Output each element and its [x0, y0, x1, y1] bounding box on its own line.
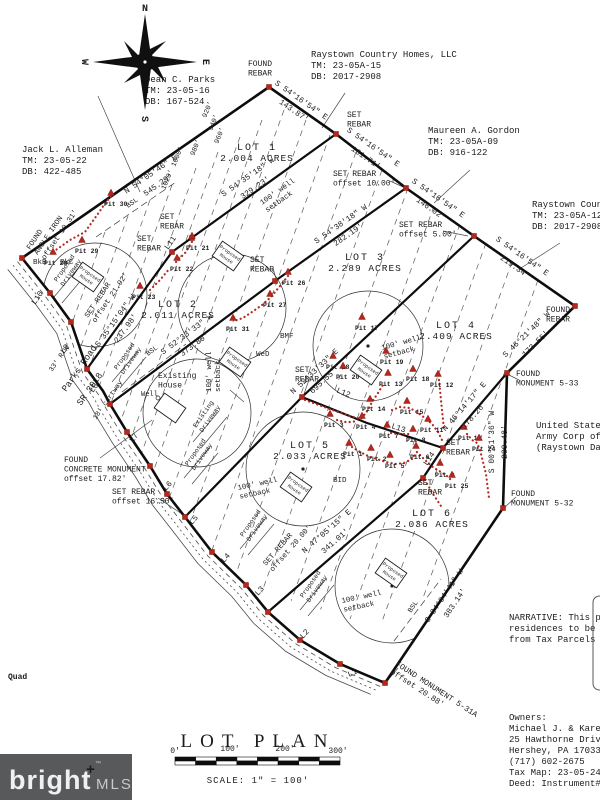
well-setback-lot5: 100' wellsetback [237, 477, 281, 502]
pit-label: Pit 11 [420, 427, 444, 434]
rebar-marker [183, 515, 188, 520]
pit-label: Pit 26 [282, 280, 306, 287]
scale-text: SCALE: 1" = 100' [207, 776, 309, 786]
scale-bar-cell [196, 757, 217, 761]
scale-tick-200: 200' [275, 745, 294, 754]
found-monument-5-31a: FOUND MONUMENT 5-31Aoffset 20.88' [388, 660, 479, 728]
text-block-raystown-country-homes-2: DB: 2017-2908 [532, 222, 600, 232]
existing-house [154, 393, 186, 423]
rebar-marker [334, 132, 339, 137]
scale-bar-cell [299, 761, 320, 765]
text-block-raystown-country-homes-1: Raystown Country Homes, LLC [311, 50, 457, 60]
seg-l10-text: L10 [30, 290, 46, 307]
soil-wed: WeD [256, 351, 270, 359]
found-rebar-top: FOUNDREBAR [248, 60, 272, 79]
text-block-jack-alleman: DB: 422-485 [22, 167, 81, 177]
rebar-marker [472, 234, 477, 239]
found-rebar-right-text: FOUND [546, 306, 570, 315]
set-rebar-m3-text: SET [295, 366, 310, 375]
pit-label: Pit 21 [186, 245, 210, 252]
text-block-raystown-country-homes-2: Raystown Coun [532, 200, 600, 210]
compass-hub [143, 60, 146, 63]
text-block-dean-parks: TM: 23-05-16 [145, 86, 210, 96]
bearing-label: S 00°51'36" W [488, 411, 497, 474]
rebar-marker [20, 256, 25, 261]
pit-marker [437, 459, 444, 466]
seg-l12-text: L12 [335, 386, 352, 400]
set-rebar-l11-a: SETREBAR [160, 213, 184, 232]
leader-line [230, 390, 244, 402]
set-rebar-s2-text: SET [446, 439, 461, 448]
logo-brand-text: bright [9, 765, 91, 795]
soil-bid: BID [333, 477, 347, 485]
soil-bkb-text: BkB [33, 259, 47, 267]
pit-marker [137, 282, 144, 289]
owner-text-blocks: Dean C. ParksTM: 23-05-16DB: 167-524Jack… [22, 50, 600, 789]
seg-l5: L5 [188, 514, 201, 527]
rebar-marker [210, 550, 215, 555]
scale-tick-0: 0' [170, 747, 180, 756]
compass-e: E [199, 59, 210, 65]
rebar-marker [404, 186, 409, 191]
found-monument-5-32-text: FOUND [511, 490, 535, 499]
lot-acreage-5: 2.033 ACRES [273, 451, 347, 462]
scale-bar [175, 757, 340, 765]
lot-acreage-1: 2.004 ACRES [220, 153, 294, 164]
pit-marker [425, 415, 432, 422]
text-block-raystown-country-homes-1: TM: 23-05A-15 [311, 61, 381, 71]
text-block-owners: 25 Hawthorne Drive [509, 735, 600, 745]
contour-line [70, 185, 172, 467]
text-block-owners: Deed: Instrument#2 [509, 779, 600, 789]
set-rebar-m2-text: REBAR [250, 266, 274, 275]
bsl-3-text: BSL [407, 600, 421, 615]
well-setback-lot6: 100' wellsetback [341, 590, 385, 615]
pit-label: Pit 13 [379, 381, 403, 388]
leader-line [322, 93, 345, 128]
pit-marker [404, 397, 411, 404]
seg-l12: L12 [335, 386, 352, 400]
soil-bid-text: BID [333, 477, 347, 485]
pit-marker [79, 236, 86, 243]
pit-label: Pit 4 [356, 424, 376, 431]
text-block-narrative: residences to be [509, 624, 595, 634]
rebar-marker [383, 681, 388, 686]
scale-bar-cell [196, 761, 217, 765]
well-label: Well [141, 391, 158, 399]
rebar-marker [125, 430, 130, 435]
pit-label: Pit 8 [406, 437, 426, 444]
compass-w: W [78, 59, 89, 65]
set-rebar-m2: SETREBAR [250, 256, 274, 275]
text-block-owners: Tax Map: 23-05-24 [509, 768, 600, 778]
scale-bar-cell [216, 761, 237, 765]
scale-bar-cell [216, 757, 237, 761]
text-block-raystown-country-homes-2: TM: 23-05A-12 [532, 211, 600, 221]
set-rebar-offset-1650-text: SET REBAR [112, 488, 155, 497]
scale-bar-cell [278, 757, 299, 761]
pit-marker [367, 395, 374, 402]
pit-label: Pit 27 [263, 302, 287, 309]
found-monument-5-33-text: FOUND [516, 370, 540, 379]
logo-mls-text: MLS [96, 776, 133, 793]
compass-s: S [138, 116, 149, 122]
pit-label: Pit 7 [379, 433, 399, 440]
text-block-raystown-country-homes-1: DB: 2017-2908 [311, 72, 381, 82]
existing-house-label: ExistingHouse [158, 372, 197, 391]
found-monument-5-32: FOUNDMONUMENT 5-32 [511, 490, 574, 509]
logo-plus-icon: + [86, 762, 95, 779]
scale-bar-cell [299, 757, 320, 761]
scale-bar-cell [175, 761, 196, 765]
rebar-marker [69, 320, 74, 325]
soil-bmf: BMF [280, 333, 294, 341]
pit-label: Pit 3 [324, 422, 344, 429]
found-concrete-monument-text: offset 17.82' [64, 475, 126, 484]
driveway-lot5: ProposedDriveway [239, 508, 269, 542]
pit-marker [410, 365, 417, 372]
distance-label: 239.48' [501, 425, 510, 459]
set-rebar-m2-text: SET [250, 256, 265, 265]
compass-n: N [142, 4, 148, 15]
bsl-3: BSL [407, 600, 421, 615]
survey-drawing: ProposedHouseProposedHouseProposedHouseP… [0, 0, 600, 800]
pit-label: Pit 31 [226, 326, 250, 333]
scale-bar-cell [319, 761, 340, 765]
well-setback-lot4: 100' wellsetback [381, 335, 425, 362]
set-rebar-l11-b-text: SET [137, 235, 152, 244]
text-block-narrative: NARRATIVE: This pl [509, 613, 600, 623]
existing-house-label-text: House [158, 382, 182, 391]
text-block-owners: (717) 602-2675 [509, 757, 585, 767]
pit-label: Pit 29 [75, 248, 99, 255]
set-rebar-l11-b-text: REBAR [137, 245, 161, 254]
set-rebar-s3: SETREBAR [418, 479, 442, 498]
pit-label: Pit 19 [380, 359, 404, 366]
found-concrete-monument-text: FOUND [64, 456, 88, 465]
set-rebar-c-text: SET [347, 111, 362, 120]
set-rebar-l11-b: SETREBAR [137, 235, 161, 254]
set-rebar-s2-text: REBAR [446, 449, 470, 458]
rebar-marker [273, 279, 278, 284]
scale-bar-cell [237, 761, 258, 765]
set-rebar-offset-10-text: SET REBAR [333, 170, 376, 179]
found-rebar-right-text: REBAR [546, 316, 570, 325]
proposed-house-lot5: ProposedHouse [280, 472, 312, 502]
text-block-owners: Michael J. & Karen [509, 724, 600, 734]
set-rebar-offset-1650-text: offset 16.50' [112, 498, 174, 507]
found-monument-5-33-text: MONUMENT 5-33 [516, 380, 579, 389]
set-rebar-m3-text: REBAR [295, 376, 319, 385]
pit-marker [384, 421, 391, 428]
rebar-marker [573, 304, 578, 309]
text-block-dean-parks: Dean C. Parks [145, 75, 215, 85]
pit-label: Pit 12 [430, 382, 454, 389]
logo-tm: ™ [95, 760, 101, 767]
well-label-text: Well [141, 391, 158, 399]
pit-label: Pit 15 [400, 409, 424, 416]
rebar-marker [266, 610, 271, 615]
contour-line [84, 168, 196, 478]
pit-label: Pit 5 [385, 463, 405, 470]
found-rebar-top-text: FOUND [248, 60, 272, 69]
seg-l6-text: L6 [162, 480, 175, 493]
text-block-us-army-corp: United States [536, 421, 600, 431]
pit-label: Pit 25 [445, 483, 469, 490]
well-setback-lot2: 100' wellsetback [206, 351, 223, 392]
pit-label: Pit 17 [355, 325, 379, 332]
well-dot [367, 345, 370, 348]
rebar-marker [267, 85, 272, 90]
seg-l5-text: L5 [188, 514, 201, 527]
text-block-jack-alleman: TM: 23-05-22 [22, 156, 87, 166]
found-angle-iron: FOUNDANGLE IRONoffset 10.31' [26, 199, 80, 262]
found-monument-5-32-text: MONUMENT 5-32 [511, 500, 574, 509]
set-rebar-l11-a-text: SET [160, 213, 175, 222]
found-concrete-monument-text: CONCRETE MONUMENT [64, 466, 146, 475]
pit-label: Pit 20 [336, 374, 360, 381]
well-setback-lot2-text: setback [215, 360, 223, 392]
lot-line-5-6 [268, 448, 443, 612]
proposed-house-lot6: ProposedHouse [375, 558, 407, 588]
quad-label: Quad [8, 673, 27, 682]
pit-marker [346, 439, 353, 446]
contour-line [321, 224, 460, 609]
seg-l7: L7 [128, 432, 141, 445]
set-rebar-offset-5-text: offset 5.00' [399, 231, 457, 240]
pit-marker [385, 369, 392, 376]
pit-label: Pit 18 [406, 376, 430, 383]
leader-line [98, 96, 140, 192]
text-block-owners: Owners: [509, 713, 547, 723]
set-rebar-c: SETREBAR [347, 111, 371, 130]
well-dot [302, 468, 305, 471]
rebar-marker [48, 291, 53, 296]
lot-plan-sheet: ProposedHouseProposedHouseProposedHouseP… [0, 0, 600, 800]
pit-marker [410, 425, 417, 432]
pit-label: Pit 22 [170, 266, 194, 273]
set-rebar-offset-5: SET REBARoffset 5.00' [399, 221, 457, 240]
rebar-marker [441, 446, 446, 451]
scale-tick-100: 100' [220, 745, 239, 754]
bsl-2: BSL [145, 344, 160, 358]
set-rebar-s3-text: REBAR [418, 489, 442, 498]
found-monument-5-33: FOUNDMONUMENT 5-33 [516, 370, 579, 389]
found-rebar-right: FOUNDREBAR [546, 306, 570, 325]
lot-acreage-4: 2.409 ACRES [419, 331, 493, 342]
soil-bmf-text: BMF [280, 333, 294, 341]
bearing-labels: N 54°05'46" E545.29'S 54°16'54" E143.87'… [94, 79, 553, 624]
text-block-maureen-gordon: DB: 916-122 [428, 148, 487, 158]
seg-l6: L6 [162, 480, 175, 493]
rebar-marker [505, 371, 510, 376]
scale-bar-cell [258, 761, 279, 765]
pit-marker [359, 313, 366, 320]
scale-bar-cell [319, 757, 340, 761]
text-block-maureen-gordon: TM: 23-05A-09 [428, 137, 498, 147]
pit-label: Pit 14 [362, 406, 386, 413]
bsl-2-text: BSL [145, 344, 160, 358]
pit-marker [174, 254, 181, 261]
text-block-dean-parks: DB: 167-524 [145, 97, 204, 107]
well-setback-lot2-text: 100' well [206, 351, 214, 392]
scale-bar-cell [237, 757, 258, 761]
seg-l10: L10 [30, 290, 46, 307]
text-block-maureen-gordon: Maureen A. Gordon [428, 126, 520, 136]
proposed-house-lot3: ProposedHouse [219, 347, 251, 377]
contour-line [187, 135, 330, 530]
text-block-jack-alleman: Jack L. Alleman [22, 145, 103, 155]
rebar-marker [244, 583, 249, 588]
seg-l1: L1 [346, 667, 359, 679]
brightmls-logo: bright + ™ MLS [0, 754, 133, 800]
found-concrete-monument: FOUNDCONCRETE MONUMENToffset 17.82' [64, 456, 146, 484]
lot-acreage-6: 2.036 ACRES [395, 519, 469, 530]
soil-bkb: BkB [33, 259, 47, 267]
scale-tick-300: 300' [328, 747, 347, 756]
text-block-us-army-corp: Army Corp of [536, 432, 600, 442]
driveway-lot3: ProposedDriveway [184, 437, 214, 471]
set-rebar-s3-text: SET [418, 479, 433, 488]
lot-acreage-3: 2.289 ACRES [328, 263, 402, 274]
found-monument-5-31a-text: FOUND MONUMENT 5-31A [393, 660, 479, 720]
found-rebar-top-text: REBAR [248, 70, 272, 79]
scale-bar-cell [258, 757, 279, 761]
text-block-us-army-corp: (Raystown Dam [536, 443, 600, 453]
pit-marker [108, 189, 115, 196]
seg-l7-text: L7 [128, 432, 141, 445]
seg-l1-text: L1 [346, 667, 359, 679]
rebar-marker [501, 506, 506, 511]
existing-house-label-text: Existing [158, 372, 197, 381]
rebar-marker [148, 464, 153, 469]
rebar-marker [300, 395, 305, 400]
set-rebar-c-text: REBAR [347, 121, 371, 130]
test-pit-trail [467, 434, 489, 498]
pit-label: Pit 30 [104, 201, 128, 208]
pit-marker [368, 444, 375, 451]
scale-bar-cell [278, 761, 299, 765]
soil-wed-text: WeD [256, 351, 270, 359]
set-rebar-offset-10-text: offset 10.00' [333, 180, 395, 189]
rebar-marker [338, 662, 343, 667]
scale-bar-cell [175, 757, 196, 761]
pit-marker [435, 370, 442, 377]
pit-label: Pit 2 [367, 456, 387, 463]
leader-line [100, 420, 152, 458]
text-block-narrative: from Tax Parcels 2 [509, 635, 600, 645]
set-rebar-l11-a-text: REBAR [160, 223, 184, 232]
text-block-owners: Hershey, PA 17033 [509, 746, 600, 756]
plan-title: LOT PLAN [181, 731, 336, 752]
poi-labels: FOUNDREBARSETREBARSET REBARoffset 10.00'… [26, 60, 579, 728]
set-rebar-offset-5-text: SET REBAR [399, 221, 442, 230]
pit-marker [387, 451, 394, 458]
title-block: LOT PLAN 0' 100' 200' 300' SCALE: 1" = 1… [170, 731, 347, 786]
